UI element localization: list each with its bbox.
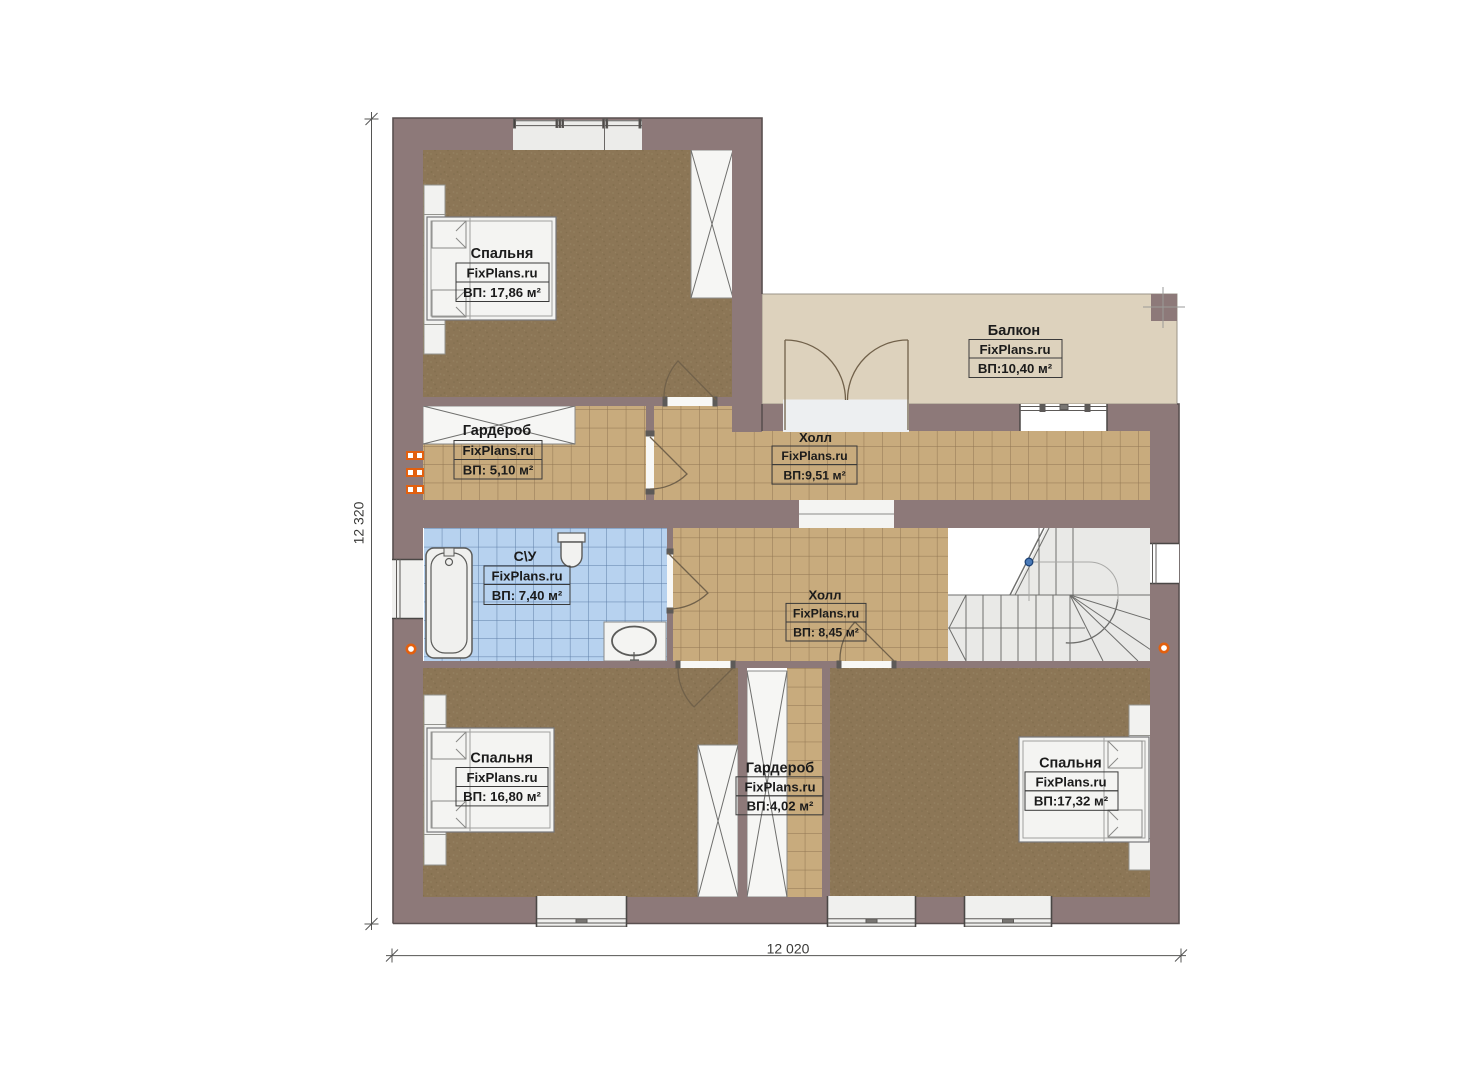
svg-text:С\У: С\У [514,548,537,564]
svg-text:12 320: 12 320 [351,501,367,544]
svg-text:FixPlans.ru: FixPlans.ru [793,607,859,621]
svg-text:Гардероб: Гардероб [463,423,532,439]
svg-text:ВП:4,02 м²: ВП:4,02 м² [747,798,814,813]
svg-text:Холл: Холл [799,430,832,445]
svg-text:ВП:17,32 м²: ВП:17,32 м² [1034,793,1109,808]
svg-text:FixPlans.ru: FixPlans.ru [466,770,537,785]
svg-text:FixPlans.ru: FixPlans.ru [491,568,562,583]
svg-text:Холл: Холл [808,588,841,603]
svg-text:ВП: 8,45 м²: ВП: 8,45 м² [793,625,859,639]
svg-text:Гардероб: Гардероб [746,760,815,776]
svg-text:ВП: 5,10 м²: ВП: 5,10 м² [463,462,534,477]
svg-text:ВП: 17,86 м²: ВП: 17,86 м² [463,285,541,300]
svg-text:Балкон: Балкон [988,323,1040,339]
svg-text:FixPlans.ru: FixPlans.ru [1035,774,1106,789]
svg-text:ВП: 16,80 м²: ВП: 16,80 м² [463,789,541,804]
svg-text:Спальня: Спальня [470,750,533,766]
svg-text:Спальня: Спальня [1039,756,1102,772]
svg-text:ВП:10,40 м²: ВП:10,40 м² [978,361,1053,376]
svg-text:Спальня: Спальня [471,246,534,262]
svg-text:FixPlans.ru: FixPlans.ru [462,443,533,458]
svg-text:ВП: 7,40 м²: ВП: 7,40 м² [492,588,563,603]
svg-text:ВП:9,51 м²: ВП:9,51 м² [783,468,845,482]
svg-text:FixPlans.ru: FixPlans.ru [466,266,537,281]
svg-text:FixPlans.ru: FixPlans.ru [744,779,815,794]
svg-text:12 020: 12 020 [767,941,810,957]
svg-text:FixPlans.ru: FixPlans.ru [781,449,847,463]
svg-text:FixPlans.ru: FixPlans.ru [979,342,1050,357]
